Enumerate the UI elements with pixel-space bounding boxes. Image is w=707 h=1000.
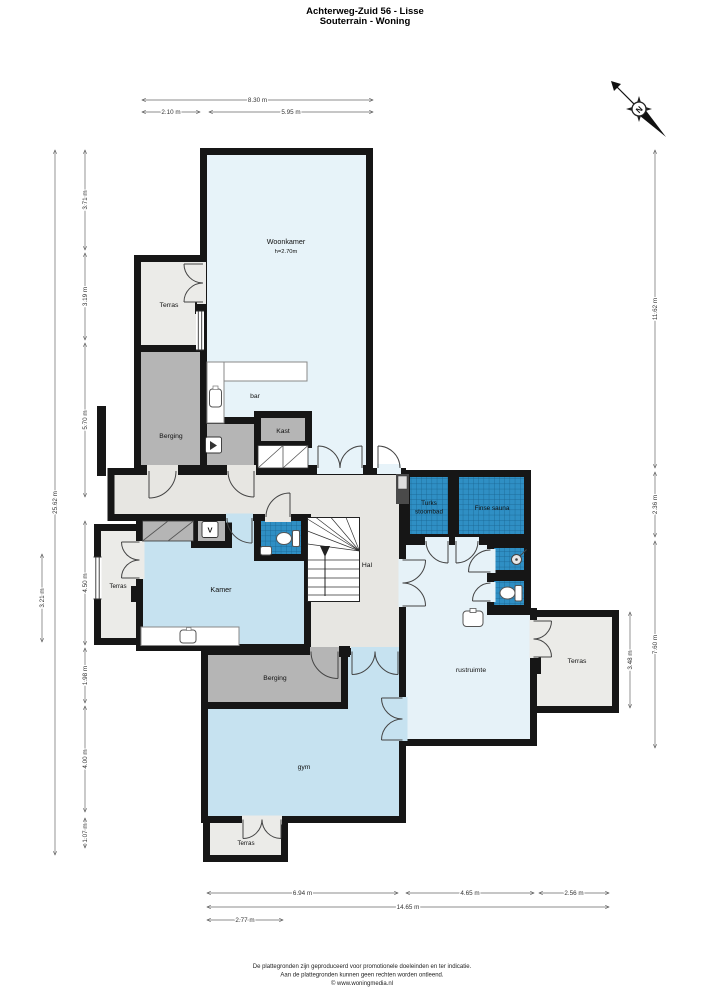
dim-label-left-3: 5.70 m [82, 410, 89, 429]
toilet2-bowl [500, 587, 515, 599]
room-label-terras-linksboven: Terras [160, 302, 179, 309]
stairs [308, 518, 360, 602]
dim-label-left-0: 25.62 m [52, 491, 59, 514]
room-label-terras-links: Terras [109, 583, 126, 590]
dim-label-right-3: 3.48 m [627, 650, 634, 669]
dim-label-left-2: 3.19 m [82, 287, 89, 306]
footer-line-1: De plattegronden zijn geproduceerd voor … [253, 964, 472, 970]
room-label-woonkamer: Woonkamer [267, 237, 306, 246]
floorplan-page: Achterweg-Zuid 56 - Lisse Souterrain - W… [0, 0, 707, 1000]
garden-wall [97, 406, 106, 476]
pier-kamer-west [131, 586, 140, 602]
window-terras-links [94, 557, 102, 599]
toilet2-tank [515, 586, 522, 602]
kamer-sink-tap [187, 628, 192, 631]
footer-line-2: Aan de plattegronden kunnen geen rechten… [280, 973, 443, 979]
room-terras-onder [207, 820, 285, 859]
room-label-turks-stoombad-2: stoombad [415, 509, 444, 516]
dim-label-left-1: 3.71 m [82, 190, 89, 209]
rooms [98, 152, 616, 859]
room-label-woonkamer-height: h=2.70m [275, 249, 298, 255]
room-label-bar: bar [250, 393, 261, 400]
dim-label-left-5: 1.98 m [82, 666, 89, 685]
dim-label-bottom-0: 6.94 m [293, 890, 312, 897]
room-label-terras-rechts: Terras [568, 658, 587, 665]
room-label-berging-boven: Berging [159, 433, 183, 440]
dim-label-right-0: 11.62 m [652, 298, 659, 320]
pier-terras-rechts [530, 657, 541, 674]
dim-label-left-8: 3.21 m [39, 588, 46, 607]
dim-label-top-0: 8.30 m [248, 97, 267, 104]
room-berging-boven [138, 349, 204, 469]
dim-label-bottom-1: 4.65 m [460, 890, 479, 897]
title-line-2: Souterrain - Woning [320, 16, 411, 27]
toilet-bowl [277, 533, 292, 545]
dim-label-bottom-3: 14.65 m [397, 904, 420, 911]
kamer-sink [180, 630, 196, 643]
rustruimte-sink [463, 609, 483, 627]
room-label-rustruimte: rustruimte [456, 667, 486, 674]
wc-hal-sink [261, 547, 272, 556]
room-label-finse-sauna: Finse sauna [475, 505, 510, 512]
room-label-turks-stoombad: Turks [421, 500, 437, 507]
boiler-box [206, 437, 222, 453]
dim-label-left-4: 4.50 m [82, 573, 89, 592]
kast-sliding-door [258, 446, 308, 469]
footer-line-3: © www.woningmedia.nl [331, 980, 393, 987]
dim-label-right-1: 2.36 m [652, 495, 659, 514]
room-label-kamer: Kamer [210, 585, 232, 594]
floorplan-svg: Achterweg-Zuid 56 - Lisse Souterrain - W… [0, 0, 707, 1000]
dim-label-top-2: 5.95 m [281, 109, 300, 116]
toilet-tank [293, 531, 300, 547]
shower-head-dot [515, 558, 518, 561]
dim-label-right-2: 7.60 m [652, 635, 659, 654]
dim-label-top-1: 2.10 m [161, 109, 180, 116]
kamer-counter [141, 627, 239, 646]
room-label-terras-onder: Terras [237, 840, 254, 847]
sauna-niche [396, 474, 409, 504]
room-label-berging-onder: Berging [263, 675, 287, 682]
pier-hal-zuid [339, 646, 350, 657]
room-label-meterkast: V [207, 526, 212, 535]
compass: N [611, 81, 666, 137]
window-terras-boven [196, 311, 204, 350]
room-label-kast: Kast [276, 428, 290, 435]
bar-sink-tap [213, 386, 218, 390]
room-label-gym: gym [298, 764, 311, 771]
dim-label-left-6: 4.00 m [82, 749, 89, 768]
kamer-closet [143, 521, 194, 541]
dim-label-bottom-4: 2.77 m [235, 917, 254, 924]
dim-label-left-7: 1.07 m [82, 823, 89, 842]
dim-label-bottom-2: 2.56 m [564, 890, 583, 897]
room-label-hal: Hal [362, 562, 373, 569]
bar-sink [210, 389, 222, 407]
